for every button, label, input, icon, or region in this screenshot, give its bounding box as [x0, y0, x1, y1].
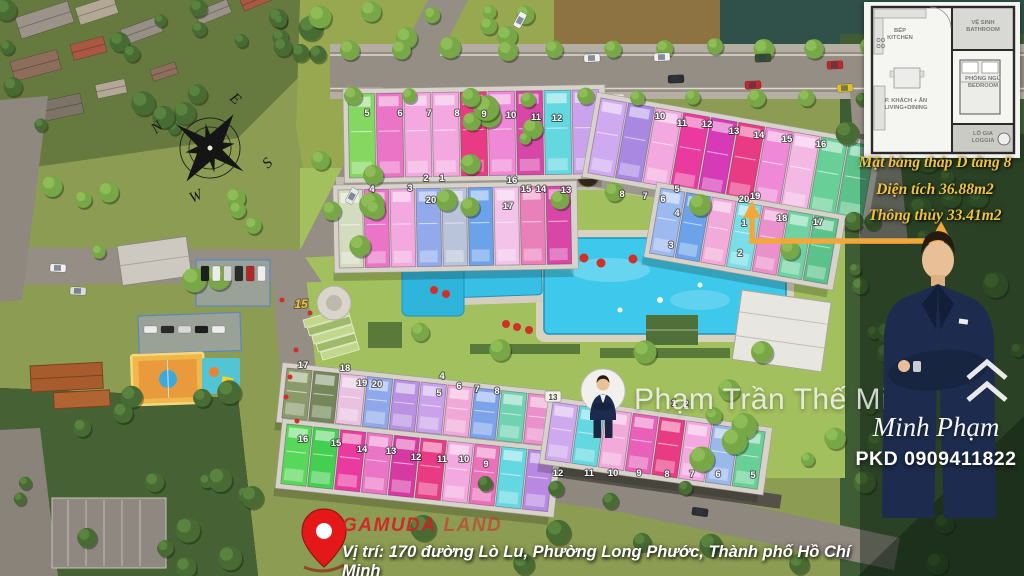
unit-marker-17: 17	[298, 360, 309, 371]
unit-marker-20: 20	[372, 379, 383, 390]
unit-marker-19: 19	[357, 378, 368, 389]
unit-marker-10: 10	[459, 454, 470, 465]
masterplan-marketing-image: N E S W 56789101112432120161514131710111…	[0, 0, 1024, 576]
agent-panel: Minh Phạm PKD 0909411822	[848, 220, 1024, 540]
brand-suffix: LAND	[444, 515, 503, 536]
clubhouse	[732, 290, 831, 372]
unit-marker-16: 16	[816, 139, 827, 150]
unit-marker-11: 11	[437, 454, 448, 465]
unit-marker-5: 5	[750, 470, 756, 481]
unit-marker-8: 8	[454, 108, 459, 119]
svg-text:LIVING+DINING: LIVING+DINING	[885, 105, 928, 111]
unit-marker-11: 11	[584, 468, 595, 479]
unit-marker-9: 9	[636, 468, 641, 479]
svg-text:BATHROOM: BATHROOM	[966, 27, 1000, 33]
unit-marker-16: 16	[507, 175, 518, 186]
unit-marker-14: 14	[357, 444, 368, 455]
footer-location: GAMUDALAND Vị trí: 170 đường Lò Lu, Phườ…	[296, 505, 856, 575]
brand-name: GAMUDA	[342, 515, 437, 536]
unit-marker-7: 7	[642, 191, 647, 202]
unit-marker-12: 12	[553, 468, 564, 479]
annotation-line-1: Mặt bằng tháp D tầng 8	[846, 150, 1024, 177]
unit-marker-3: 3	[407, 183, 412, 194]
washer	[998, 133, 1010, 145]
unit-marker-3: 3	[668, 240, 673, 251]
unit-marker-12: 12	[411, 452, 422, 463]
parking-bottom-left	[52, 498, 166, 568]
unit-marker-17: 17	[813, 217, 824, 228]
unit-marker-4: 4	[369, 184, 375, 195]
svg-text:KITCHEN: KITCHEN	[887, 35, 913, 41]
unit-marker-5: 5	[364, 108, 370, 119]
bedroom-label: PHÒNG NGỦ	[965, 74, 1001, 82]
car	[654, 53, 670, 62]
unit-marker-7: 7	[474, 384, 479, 395]
unit-marker-18: 18	[340, 363, 351, 374]
unit-marker-1: 1	[439, 173, 445, 184]
unit-marker-1: 1	[741, 218, 747, 229]
sofa	[874, 86, 885, 130]
annotation-line-2: Diện tích 36.88m2	[846, 177, 1024, 204]
unit-marker-9: 9	[481, 109, 486, 120]
unit-marker-5: 5	[674, 184, 680, 195]
unit-marker-4: 4	[674, 208, 680, 219]
unit-marker-10: 10	[506, 110, 517, 121]
unit-marker-16: 16	[298, 434, 309, 445]
bathroom-label: VỆ SINH	[971, 18, 994, 26]
unit-marker-9: 9	[483, 459, 488, 470]
parking-lot-b	[138, 312, 241, 354]
unit-marker-14: 14	[536, 184, 547, 195]
car	[668, 75, 684, 84]
car	[837, 84, 853, 93]
car	[50, 264, 66, 273]
car	[70, 287, 86, 296]
unit-marker-20: 20	[739, 194, 750, 205]
unit-marker-12: 12	[702, 119, 713, 130]
unit-marker-10: 10	[655, 111, 666, 122]
agent-jacket	[882, 284, 938, 518]
living-label: P. KHÁCH + ĂN	[885, 97, 927, 104]
unit-marker-8: 8	[494, 386, 499, 397]
loggia-label: LÔ GIA	[973, 129, 994, 137]
unit-marker-6: 6	[660, 194, 665, 205]
unit-marker-13: 13	[561, 185, 572, 196]
unit-marker-11: 11	[531, 112, 542, 123]
agent-photo	[848, 220, 1024, 520]
unit-marker-2: 2	[737, 248, 742, 259]
kitchen-label: BẾP	[894, 27, 906, 34]
unit-marker-11: 11	[677, 118, 688, 129]
boxed-marker-13: 13	[549, 393, 558, 402]
project-address: Vị trí: 170 đường Lò Lu, Phường Long Phư…	[342, 543, 862, 576]
floorplan-annotation: Mặt bằng tháp D tầng 8 Diện tích 36.88m2…	[846, 150, 1024, 230]
special-marker-15: 15	[294, 297, 308, 311]
unit-marker-12: 12	[552, 113, 563, 124]
unit-marker-13: 13	[386, 446, 397, 457]
car	[755, 54, 771, 63]
unit-marker-5: 5	[436, 388, 442, 399]
unit-marker-15: 15	[331, 438, 342, 449]
kitchen-counter	[874, 9, 926, 18]
unit-marker-19: 19	[750, 191, 761, 202]
unit-marker-18: 18	[777, 213, 788, 224]
unit-marker-13: 13	[729, 126, 740, 137]
unit-marker-17: 17	[503, 201, 514, 212]
unit-marker-15: 15	[782, 134, 793, 145]
unit-marker-8: 8	[664, 469, 669, 480]
unit-marker-20: 20	[426, 195, 437, 206]
unit-marker-14: 14	[754, 130, 765, 141]
agent-signature: Minh Phạm	[848, 412, 1024, 443]
unit-marker-15: 15	[521, 184, 532, 195]
agent-watch	[913, 361, 921, 372]
agent-phone: PKD 0909411822	[848, 448, 1024, 471]
unit-marker-10: 10	[608, 468, 619, 479]
agent-head	[922, 241, 954, 279]
car	[745, 81, 761, 90]
brand-logo: GAMUDALAND	[342, 515, 502, 537]
unit-marker-6: 6	[456, 381, 461, 392]
dining-table	[894, 68, 920, 88]
unit-marker-6: 6	[715, 469, 720, 480]
svg-text:BEDROOM: BEDROOM	[968, 83, 998, 89]
unit-marker-7: 7	[689, 469, 694, 480]
unit-marker-6: 6	[397, 108, 402, 119]
svg-text:LOGGIA: LOGGIA	[972, 138, 996, 144]
unit-marker-8: 8	[619, 189, 624, 200]
car	[584, 54, 600, 63]
car	[827, 61, 843, 70]
unit-marker-4: 4	[439, 371, 445, 382]
floorplan-inset: BẾP KITCHEN VỆ SINH BATHROOM PHÒNG NGỦ B…	[864, 2, 1020, 158]
unit-marker-2: 2	[423, 173, 428, 184]
watermark-avatar	[580, 368, 626, 440]
unit-marker-7: 7	[426, 108, 431, 119]
